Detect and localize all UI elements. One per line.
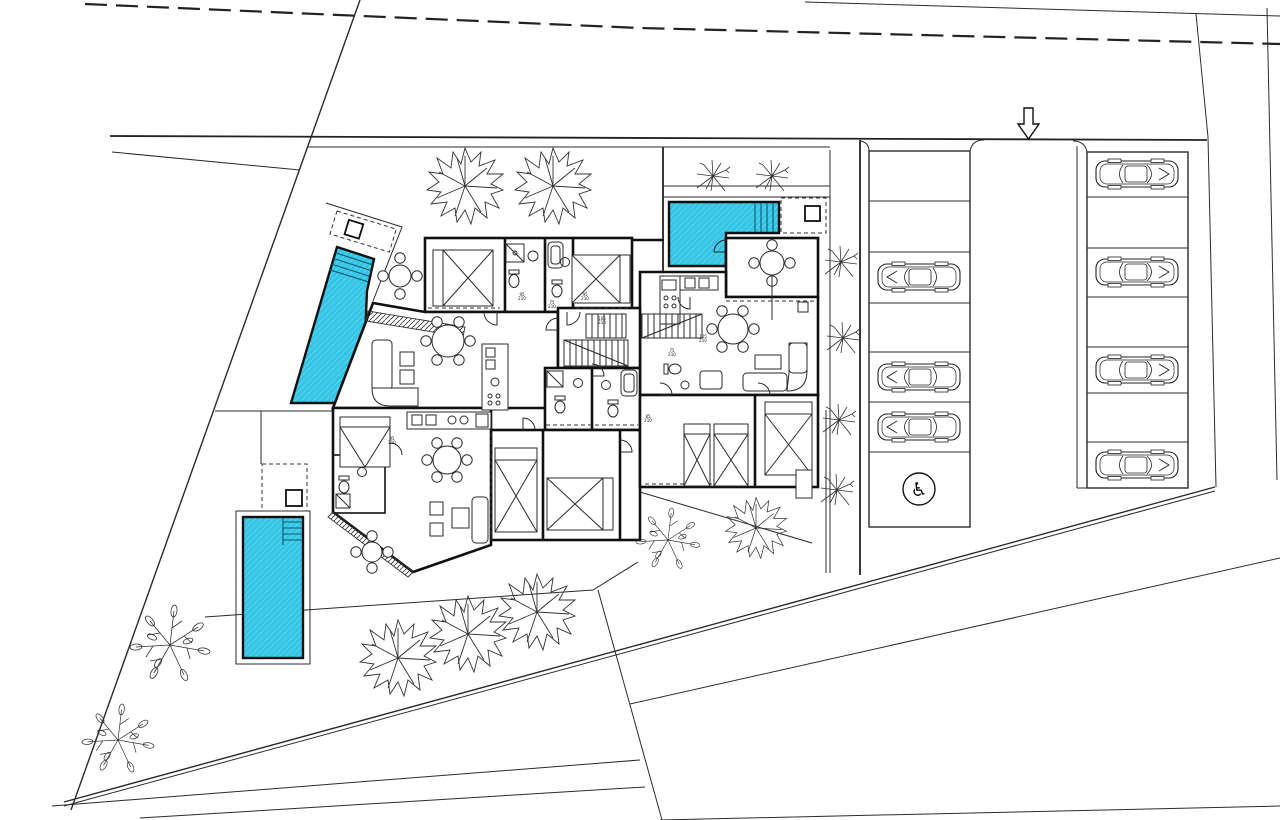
bed — [495, 448, 537, 532]
svg-text:105210: 105210 — [598, 316, 606, 325]
bathtub — [621, 370, 637, 396]
tree-icon — [515, 148, 591, 224]
tree-icon — [726, 498, 787, 559]
boundary-right-1 — [1196, 14, 1208, 137]
shower — [336, 494, 350, 508]
pool-deck-dashed — [330, 211, 396, 252]
site-plan-canvas: 95210 75210 95210 105210 75210 105210 85… — [0, 0, 1280, 820]
pool-water — [243, 517, 303, 658]
entrance-arrow-icon — [1018, 108, 1039, 139]
tree-icon — [430, 596, 506, 672]
boundary-right-2 — [1208, 137, 1216, 487]
road-edge-bottom-3 — [52, 760, 640, 806]
shrub-icon — [827, 322, 860, 353]
boundary-left — [71, 0, 360, 810]
wardrobe — [796, 470, 812, 498]
pool-equipment-box — [286, 490, 302, 506]
pool-villa-3 — [236, 464, 310, 664]
terrace-line-se — [640, 492, 812, 543]
leafy-tree-icon — [636, 508, 700, 570]
bed — [433, 250, 493, 306]
pool-equipment-box — [345, 220, 364, 239]
road-centerline — [85, 4, 1280, 44]
svg-text:♿: ♿ — [910, 479, 927, 501]
car — [1096, 257, 1178, 287]
bed — [714, 424, 748, 486]
kitchen-counter — [482, 344, 508, 410]
toilet — [339, 476, 349, 493]
fence-top — [110, 136, 1207, 140]
bed — [684, 424, 710, 486]
bed — [340, 417, 390, 467]
terrace-table-set — [378, 253, 422, 299]
parking: ♿ — [861, 108, 1188, 527]
tree-icon — [427, 148, 503, 224]
neighbor-line — [112, 152, 300, 170]
toilet — [552, 280, 562, 297]
car — [1096, 355, 1178, 385]
road-edge-top — [805, 2, 1280, 16]
pool-equipment-box — [805, 206, 820, 221]
accessible-parking-icon: ♿ — [903, 473, 935, 505]
fence-driveway — [598, 590, 662, 820]
tree-icon — [360, 620, 436, 696]
car — [878, 412, 960, 442]
shrub-icon — [823, 404, 856, 435]
toilet — [664, 364, 681, 374]
road-edge-bottom-2 — [660, 806, 1280, 820]
car — [1096, 159, 1178, 189]
toilet — [608, 400, 618, 417]
road-edge-bottom-1 — [630, 558, 1280, 704]
car — [878, 362, 960, 392]
parking-column-right — [1073, 141, 1188, 488]
kitchen-counter — [407, 412, 491, 429]
parking-column-left: ♿ — [861, 140, 984, 527]
bed — [765, 402, 812, 475]
bed — [547, 478, 613, 530]
leafy-tree-icon — [130, 605, 211, 682]
leafy-tree-icon — [82, 704, 155, 773]
svg-text:105210: 105210 — [699, 334, 707, 343]
car — [878, 262, 960, 292]
boundary-far-right — [1267, 8, 1277, 480]
site-plan-drawing: 95210 75210 95210 105210 75210 105210 85… — [0, 0, 1280, 820]
shower — [547, 371, 563, 387]
tree-icon — [499, 574, 575, 650]
car — [1096, 450, 1178, 480]
toilet — [509, 270, 519, 288]
road-edge-bottom-4 — [140, 787, 645, 818]
shower — [506, 244, 524, 262]
toilet — [555, 396, 565, 413]
